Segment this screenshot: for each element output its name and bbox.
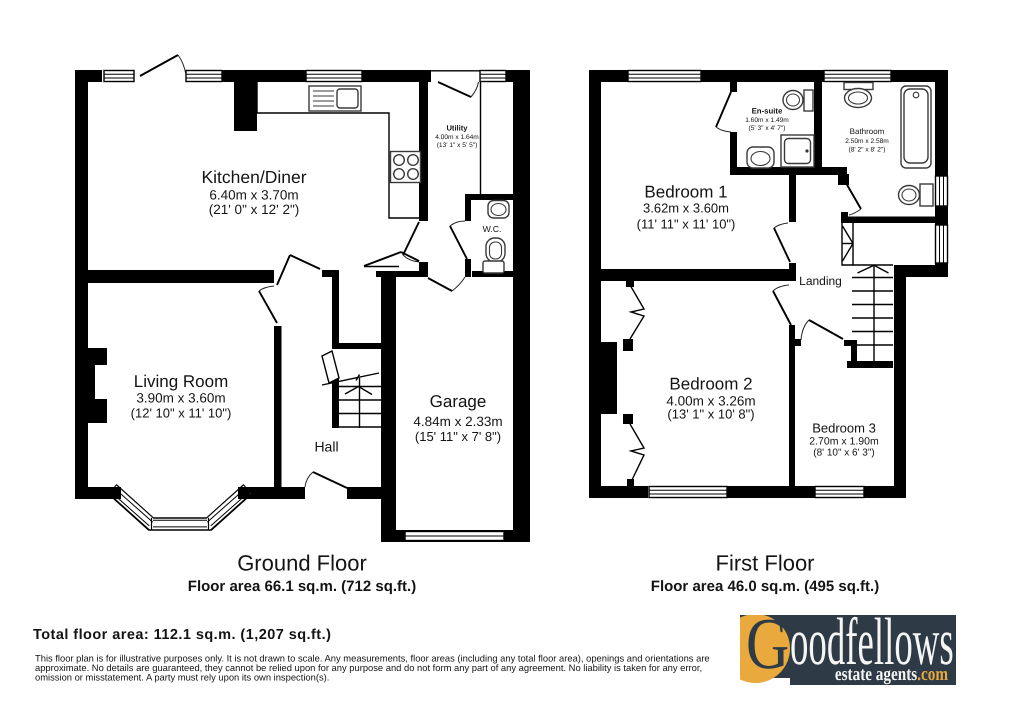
svg-text:omission or misstatement. A pa: omission or misstatement. A party must r… <box>35 672 329 683</box>
svg-text:Kitchen/Diner: Kitchen/Diner <box>201 167 306 187</box>
svg-text:(13' 1" x 5' 5"): (13' 1" x 5' 5") <box>437 142 478 149</box>
svg-text:(21' 0" x 12' 2"): (21' 0" x 12' 2") <box>209 202 300 217</box>
svg-text:(11' 11" x 11' 10"): (11' 11" x 11' 10") <box>637 217 736 232</box>
svg-text:(8' 2" x 8' 2"): (8' 2" x 8' 2") <box>849 147 886 154</box>
svg-text:Utility: Utility <box>446 124 468 133</box>
svg-text:Ground Floor: Ground Floor <box>237 551 367 576</box>
svg-text:(8' 10" x 6' 3"): (8' 10" x 6' 3") <box>813 448 875 459</box>
svg-text:4.84m x 2.33m: 4.84m x 2.33m <box>413 414 502 429</box>
svg-text:(5' 3" x 4' 7"): (5' 3" x 4' 7") <box>749 125 786 132</box>
svg-text:3.62m x 3.60m: 3.62m x 3.60m <box>643 201 729 216</box>
svg-text:3.90m x 3.60m: 3.90m x 3.60m <box>136 391 225 406</box>
svg-text:Landing: Landing <box>799 274 842 288</box>
svg-text:Floor area 46.0 sq.m. (495 sq.: Floor area 46.0 sq.m. (495 sq.ft.) <box>651 578 879 595</box>
svg-text:1.60m x 1.49m: 1.60m x 1.49m <box>745 117 789 124</box>
svg-text:4.00m x 1.64m: 4.00m x 1.64m <box>435 134 479 141</box>
svg-text:W.C.: W.C. <box>483 224 502 234</box>
svg-text:6.40m x 3.70m: 6.40m x 3.70m <box>209 188 298 203</box>
svg-text:En-suite: En-suite <box>752 107 783 116</box>
svg-text:First Floor: First Floor <box>716 551 815 576</box>
svg-text:G: G <box>746 603 789 684</box>
svg-text:Floor area 66.1 sq.m. (712 sq.: Floor area 66.1 sq.m. (712 sq.ft.) <box>188 578 416 595</box>
svg-text:Hall: Hall <box>314 439 338 455</box>
svg-text:Bedroom 3: Bedroom 3 <box>812 421 876 436</box>
svg-text:(13' 1" x 10' 8"): (13' 1" x 10' 8") <box>667 407 754 422</box>
svg-text:(12' 10" x 11' 10"): (12' 10" x 11' 10") <box>131 406 232 421</box>
svg-text:Bedroom 2: Bedroom 2 <box>669 375 752 394</box>
svg-text:2.50m x 2.58m: 2.50m x 2.58m <box>845 138 889 145</box>
svg-text:estate agents.com: estate agents.com <box>835 664 948 685</box>
svg-text:Total floor area: 112.1 sq.m.: Total floor area: 112.1 sq.m. (1,207 sq.… <box>33 627 331 643</box>
svg-text:(15' 11" x 7' 8"): (15' 11" x 7' 8") <box>415 429 501 444</box>
svg-text:Bathroom: Bathroom <box>850 127 885 136</box>
svg-text:Garage: Garage <box>430 392 487 411</box>
svg-text:Bedroom 1: Bedroom 1 <box>644 183 727 202</box>
svg-text:Living Room: Living Room <box>134 372 229 391</box>
svg-text:2.70m x 1.90m: 2.70m x 1.90m <box>809 436 879 448</box>
